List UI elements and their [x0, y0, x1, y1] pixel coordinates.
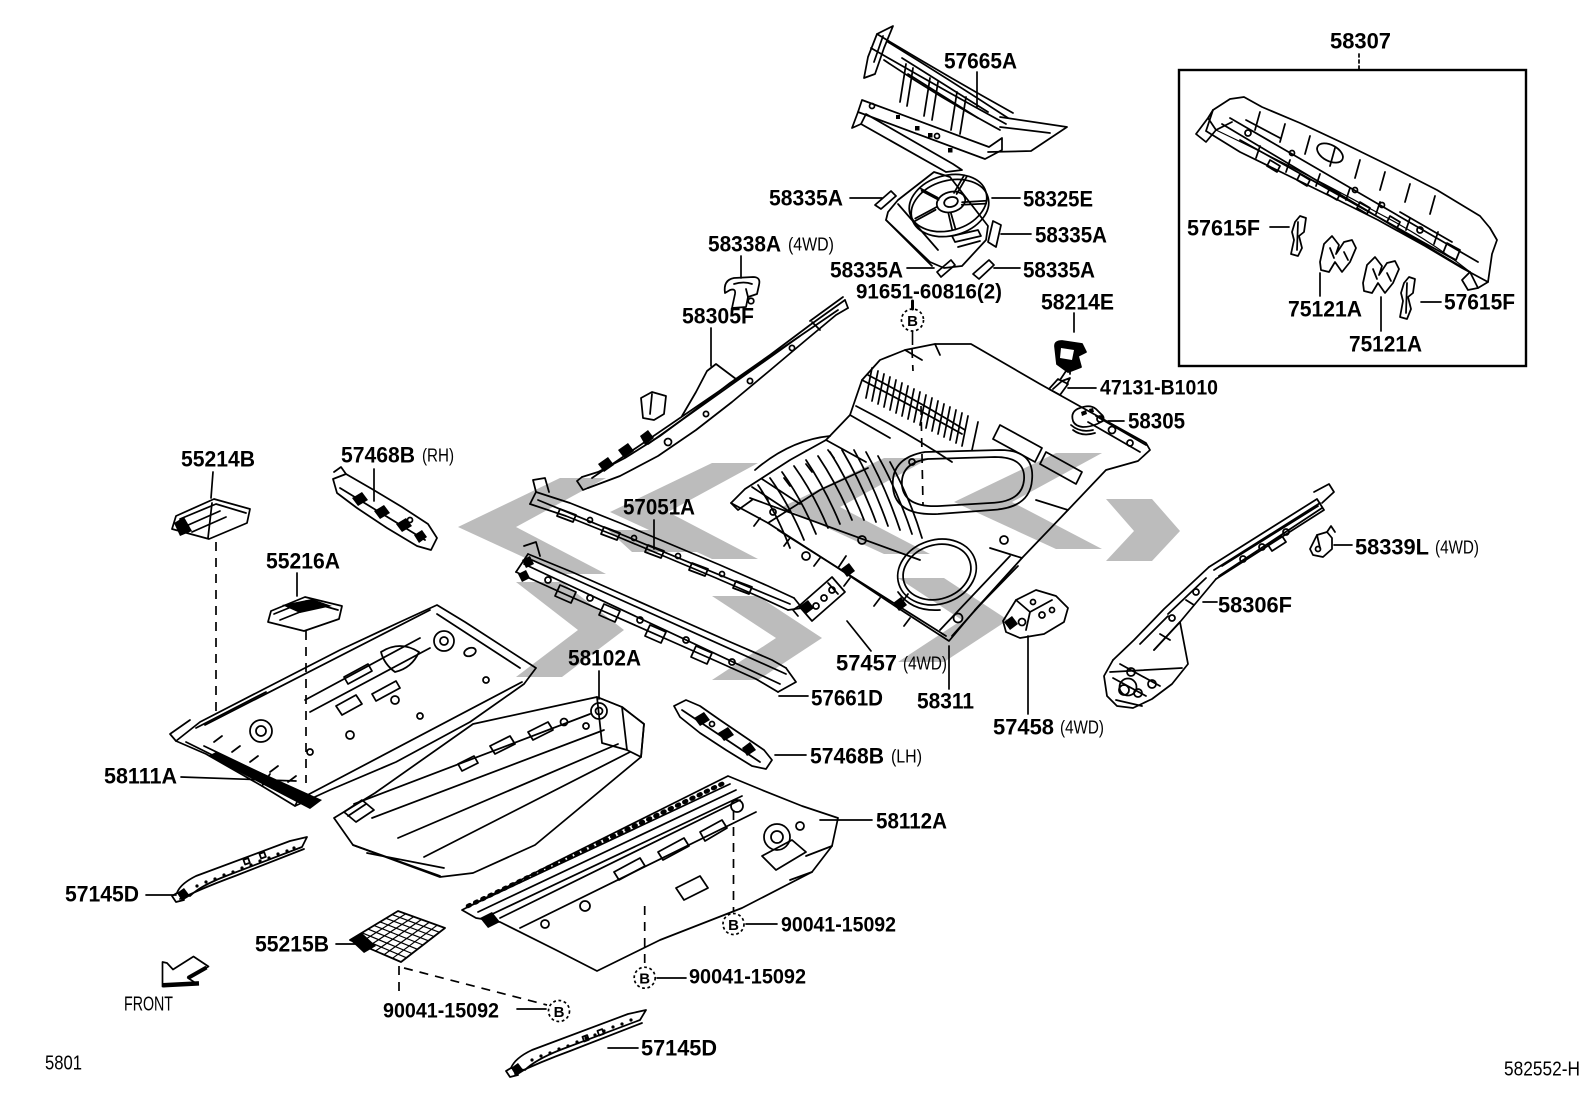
svg-text:FRONT: FRONT: [124, 994, 173, 1016]
svg-text:58339L: 58339L: [1355, 535, 1429, 560]
svg-text:75121A: 75121A: [1349, 332, 1422, 357]
svg-text:(RH): (RH): [422, 446, 454, 466]
svg-text:58305: 58305: [1128, 409, 1185, 434]
svg-text:58102A: 58102A: [568, 646, 641, 671]
svg-text:57468B: 57468B: [341, 443, 415, 468]
svg-text:58306F: 58306F: [1218, 593, 1292, 618]
svg-text:55216A: 55216A: [266, 549, 340, 574]
svg-text:57145D: 57145D: [65, 882, 139, 907]
svg-text:(4WD): (4WD): [1060, 718, 1104, 738]
svg-text:58338A: 58338A: [708, 232, 781, 257]
svg-text:58112A: 58112A: [876, 809, 947, 834]
svg-text:57665A: 57665A: [944, 49, 1017, 74]
svg-text:58307: 58307: [1330, 29, 1391, 54]
svg-text:91651-60816(2): 91651-60816(2): [856, 280, 1002, 304]
svg-text:57051A: 57051A: [623, 495, 695, 520]
svg-text:58335A: 58335A: [1023, 258, 1095, 283]
svg-text:B: B: [554, 1004, 565, 1021]
svg-text:75121A: 75121A: [1288, 297, 1362, 322]
svg-text:57468B: 57468B: [810, 744, 884, 769]
svg-text:(4WD): (4WD): [1435, 538, 1479, 558]
svg-text:55215B: 55215B: [255, 932, 329, 957]
svg-text:57458: 57458: [993, 715, 1054, 740]
svg-text:B: B: [728, 917, 739, 934]
svg-text:90041-15092: 90041-15092: [383, 999, 499, 1023]
svg-text:90041-15092: 90041-15092: [689, 965, 806, 989]
svg-text:(LH): (LH): [891, 747, 922, 767]
svg-text:58335A: 58335A: [769, 186, 843, 211]
svg-text:B: B: [639, 971, 650, 988]
svg-text:5801: 5801: [45, 1053, 82, 1075]
svg-text:57615F: 57615F: [1187, 216, 1260, 241]
svg-text:(4WD): (4WD): [788, 235, 834, 255]
svg-text:55214B: 55214B: [181, 447, 255, 472]
svg-text:58311: 58311: [917, 689, 974, 714]
svg-text:58335A: 58335A: [1035, 223, 1107, 248]
svg-text:90041-15092: 90041-15092: [781, 913, 896, 937]
svg-text:B: B: [907, 313, 918, 330]
svg-text:57457: 57457: [836, 651, 897, 676]
svg-text:58325E: 58325E: [1023, 187, 1093, 212]
svg-text:57661D: 57661D: [811, 686, 883, 711]
svg-text:57145D: 57145D: [641, 1036, 717, 1061]
svg-text:582552-H: 582552-H: [1504, 1059, 1580, 1081]
svg-text:47131-B1010: 47131-B1010: [1100, 376, 1218, 400]
svg-text:(4WD): (4WD): [903, 654, 947, 674]
svg-text:57615F: 57615F: [1444, 290, 1515, 315]
svg-text:58214E: 58214E: [1041, 290, 1114, 315]
svg-text:58111A: 58111A: [104, 764, 177, 789]
